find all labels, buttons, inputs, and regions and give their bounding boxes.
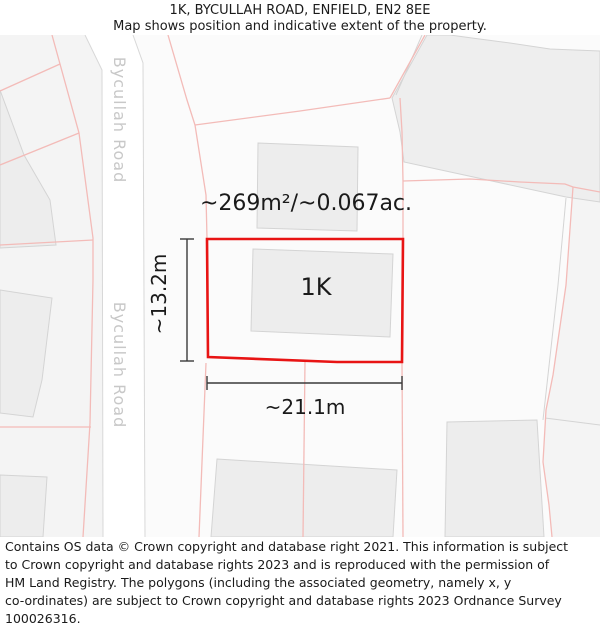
header: 1K, BYCULLAH ROAD, ENFIELD, EN2 8EE Map … — [0, 0, 600, 35]
footer-line: HM Land Registry. The polygons (includin… — [5, 574, 597, 592]
page-subtitle: Map shows position and indicative extent… — [0, 19, 600, 35]
building-north — [257, 143, 358, 231]
width-dimension-label: ~21.1m — [265, 395, 346, 419]
footer-line: Contains OS data © Crown copyright and d… — [5, 538, 597, 556]
building-southeast — [445, 420, 544, 537]
area-label: ~269m²/~0.067ac. — [200, 191, 412, 216]
page-title: 1K, BYCULLAH ROAD, ENFIELD, EN2 8EE — [0, 0, 600, 19]
map-canvas: Bycullah Road Bycullah Road ~269m²/~0.06… — [0, 35, 600, 537]
footer-line: to Crown copyright and database rights 2… — [5, 556, 597, 574]
plot-label: 1K — [300, 273, 332, 301]
map: Bycullah Road Bycullah Road ~269m²/~0.06… — [0, 35, 600, 537]
footer-line: co-ordinates) are subject to Crown copyr… — [5, 592, 597, 610]
copyright-footer: Contains OS data © Crown copyright and d… — [5, 538, 597, 628]
road-label-lower: Bycullah Road — [110, 302, 129, 428]
building-west-bottom — [0, 475, 47, 537]
road-label-upper: Bycullah Road — [110, 57, 129, 183]
footer-line: 100026316. — [5, 610, 597, 628]
height-dimension-label: ~13.2m — [147, 254, 171, 335]
